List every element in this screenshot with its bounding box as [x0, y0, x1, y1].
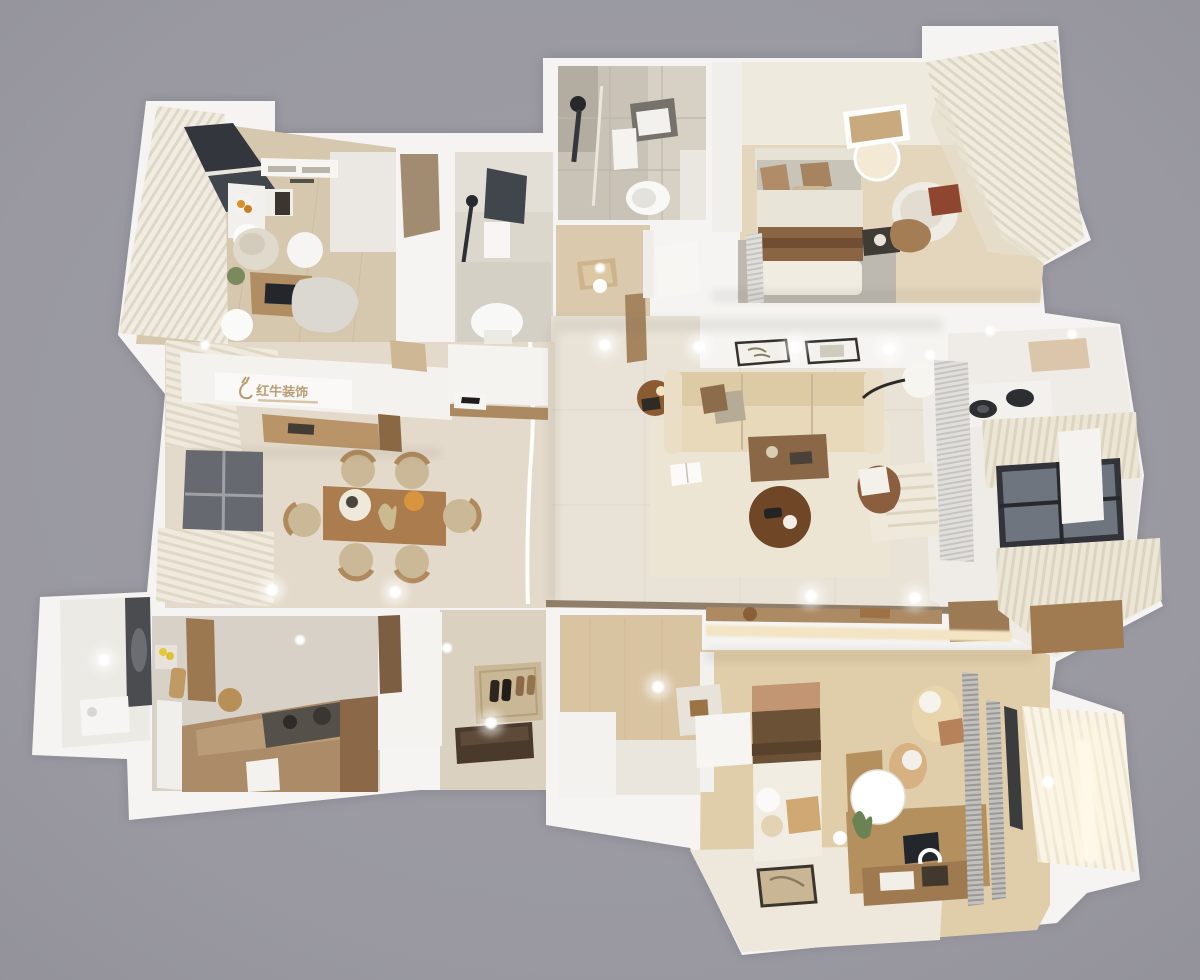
svg-text:红牛装饰: 红牛装饰 — [256, 383, 309, 400]
